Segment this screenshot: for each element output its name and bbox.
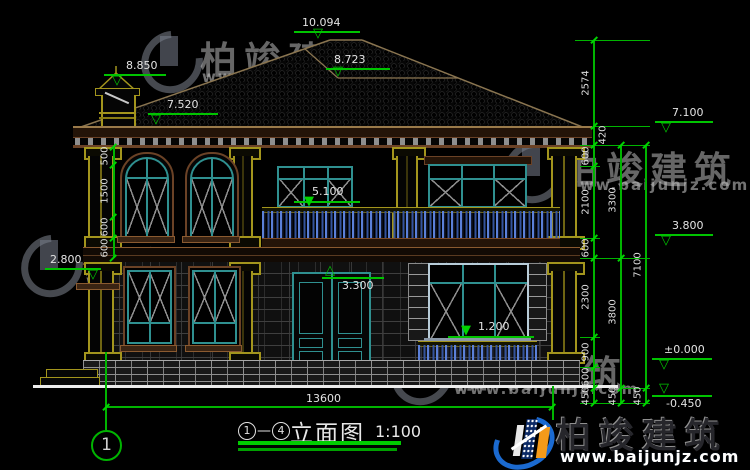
elevation-triangle-icon: ▽	[331, 65, 345, 78]
elevation-triangle-icon: ▽	[311, 27, 325, 40]
extension-line	[580, 337, 600, 338]
dimension-label: 2100	[581, 189, 592, 214]
elevation-label: 5.100	[312, 186, 344, 198]
window-outer-frame	[188, 266, 241, 348]
elevation-label: 3.800	[672, 220, 704, 232]
window-lattice	[192, 179, 212, 234]
elevation-triangle-icon: ▽	[149, 113, 163, 126]
overall-width-label: 13600	[306, 393, 341, 405]
stone-quoins	[526, 263, 547, 341]
title-underline-thin	[238, 448, 397, 451]
balcony-window	[428, 164, 527, 208]
arched-window-frame	[125, 157, 169, 238]
window-frame	[127, 270, 172, 344]
window-mullion	[214, 272, 216, 342]
dimension-label: 500	[100, 146, 111, 165]
window-spring-line	[127, 177, 167, 179]
elevation-drawing-canvas: 柏竣建筑 www.baijunjz.com 柏竣建筑 www.baijunjz.…	[0, 0, 750, 470]
elevation-label: ±0.000	[664, 344, 705, 356]
window-outer-frame	[123, 266, 176, 348]
dimension-label: 2574	[581, 70, 592, 95]
elevation-triangle-icon: ▽	[657, 358, 671, 371]
window-lattice	[147, 179, 167, 234]
chimney-band	[99, 117, 134, 119]
door-panel	[299, 282, 323, 334]
elevation-leader	[294, 31, 360, 33]
window-transom	[430, 282, 527, 284]
dimension-line	[645, 145, 647, 403]
elevation-label: 7.520	[167, 99, 199, 111]
elevation-triangle-icon: ▽	[659, 234, 673, 247]
window-mullion	[211, 159, 213, 236]
window-lattice	[129, 272, 150, 322]
stone-quoins	[408, 263, 429, 341]
dimension-label: 450	[608, 386, 619, 405]
window-lattice	[430, 178, 461, 206]
eave-fascia	[73, 128, 592, 138]
axis-number: 1	[101, 435, 112, 455]
dimension-label: 2300	[581, 284, 592, 309]
dimension-label: 450	[633, 386, 644, 405]
elevation-triangle-icon: ▼	[459, 324, 473, 337]
elevation-label: 8.850	[126, 60, 158, 72]
dimension-label: 3300	[608, 187, 619, 212]
window-lattice	[215, 272, 236, 322]
window-transom	[430, 178, 525, 180]
title-scale: 1:100	[375, 422, 421, 441]
arched-window	[185, 152, 239, 240]
window-sill	[120, 345, 177, 352]
dimension-label: 900	[581, 342, 592, 361]
wall-ledge	[76, 283, 120, 290]
window-transom	[279, 178, 351, 180]
door-leaf	[294, 274, 333, 374]
elevation-triangle-icon: ▼	[302, 195, 316, 208]
elevation-triangle-icon: ▽	[657, 382, 671, 395]
dimension-label: 600	[100, 238, 111, 257]
window-mullion	[146, 159, 148, 236]
dimension-label: 1500	[100, 178, 111, 203]
extension-line	[105, 352, 107, 430]
elevation-triangle-icon: ▽	[86, 268, 100, 281]
dimension-label: 7100	[633, 252, 644, 277]
title-axis-start: 1	[238, 422, 256, 440]
eave-bottom-trim	[73, 145, 592, 148]
window-frame	[192, 270, 237, 344]
dimension-label: 600	[100, 217, 111, 236]
window-lattice	[494, 178, 525, 206]
door-panel	[299, 338, 323, 348]
title-dash: —	[257, 423, 271, 439]
extension-line	[575, 40, 650, 41]
elevation-triangle-icon: ▽	[659, 121, 673, 134]
arched-window-frame	[190, 157, 234, 238]
window-spring-line	[192, 177, 232, 179]
axis-bubble: 1	[91, 430, 122, 461]
window-transom	[129, 322, 170, 324]
logo-url: www.baijunjz.com	[560, 447, 739, 466]
extension-line	[580, 166, 600, 167]
dimension-label: 450	[581, 386, 592, 405]
window-mullion	[493, 166, 495, 206]
dimension-line	[593, 40, 595, 403]
ground-line	[33, 385, 618, 388]
window-sill	[185, 345, 242, 352]
dimension-label: 600	[581, 146, 592, 165]
elevation-label: 3.300	[342, 280, 374, 292]
dimension-label: 3800	[608, 299, 619, 324]
dimension-label: 420	[598, 125, 609, 144]
door-panel	[338, 338, 362, 348]
stone-base-course	[83, 360, 580, 386]
chimney-band	[99, 112, 134, 114]
elevation-label: 1.200	[478, 321, 510, 333]
dimension-label: 600	[581, 367, 592, 386]
elevation-label: 7.100	[672, 107, 704, 119]
balcony-balusters	[262, 211, 560, 238]
window-lattice	[212, 179, 232, 234]
elevation-label: 2.800	[50, 254, 82, 266]
window-sill	[117, 236, 175, 243]
dimension-line	[620, 145, 622, 403]
window-sill	[182, 236, 240, 243]
arched-window	[120, 152, 174, 240]
window-mullion	[149, 272, 151, 342]
window-mullion	[461, 166, 463, 206]
window-lattice	[127, 179, 147, 234]
pilaster	[396, 156, 418, 210]
window-lattice	[194, 272, 215, 322]
window-transom	[194, 322, 235, 324]
elevation-triangle-icon: ▽	[110, 74, 124, 87]
title-underline	[238, 441, 401, 445]
floor-band-line	[83, 255, 580, 256]
pilaster	[551, 271, 577, 352]
window-lattice	[150, 272, 171, 322]
title-axis-end: 4	[272, 422, 290, 440]
elevation-triangle-icon: △	[323, 264, 337, 277]
dimension-label: 600	[581, 238, 592, 257]
window-lattice	[430, 282, 462, 340]
dimension-line	[105, 406, 553, 408]
eave-dentils	[75, 138, 590, 145]
